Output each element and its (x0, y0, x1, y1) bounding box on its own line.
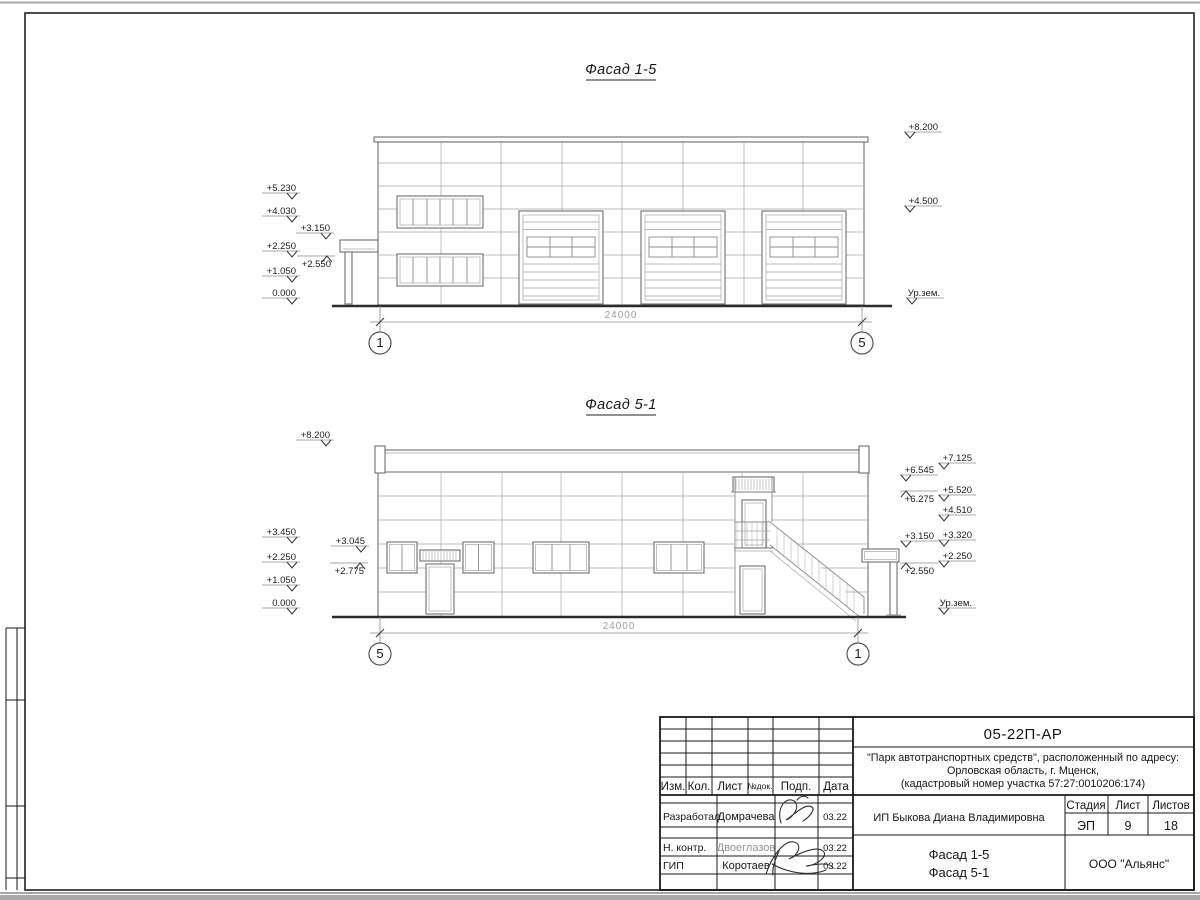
svg-text:+6.545: +6.545 (905, 465, 934, 476)
entrance-portico (340, 240, 378, 304)
elevation-mark: +1.050 (262, 266, 300, 282)
svg-text:+2.550: +2.550 (905, 566, 934, 577)
row-date-gip: 03.22 (823, 861, 847, 872)
facade-5-1-elevation-marks-right-inner: +6.545 +6.275 +3.150 +2.550 (900, 465, 938, 577)
elevation-mark: +1.050 (262, 575, 300, 591)
dimension-text: 24000 (605, 310, 638, 321)
row-name-gip: Коротаев (722, 860, 770, 872)
title-block: 05-22П-АР "Парк автотранспортных средств… (660, 717, 1194, 890)
svg-text:+2.250: +2.250 (267, 552, 296, 563)
project-description-line3: (кадастровый номер участка 57:27:0010206… (901, 778, 1145, 790)
elevation-mark: +3.450 (262, 527, 300, 543)
elevation-mark: +2.550 (297, 256, 335, 270)
svg-text:5: 5 (858, 335, 865, 350)
svg-text:+2.250: +2.250 (943, 551, 972, 562)
svg-text:+2.550: +2.550 (302, 259, 331, 270)
facade-5-1-title: Фасад 5-1 (585, 397, 657, 413)
sheet-number: 9 (1125, 819, 1132, 833)
project-description-line1: "Парк автотранспортных средств", располо… (867, 752, 1179, 764)
stage-label: Стадия (1066, 800, 1105, 812)
elevation-mark: 0.000 (262, 598, 300, 614)
elevation-mark: +8.200 (904, 122, 942, 138)
svg-text:+8.200: +8.200 (909, 122, 938, 133)
svg-text:+4.030: +4.030 (267, 206, 296, 217)
stage-value: ЭП (1077, 819, 1095, 833)
window-2 (463, 542, 494, 573)
col-header-izm: Изм. (661, 781, 686, 793)
svg-text:1: 1 (854, 646, 861, 661)
svg-text:+1.050: +1.050 (267, 266, 296, 277)
side-stamp (6, 628, 25, 890)
elevation-mark: +5.520 (938, 485, 976, 501)
col-header-data: Дата (823, 781, 849, 793)
facade-1-5-elevation-marks-right: +8.200 +4.500 Ур.зем. (904, 122, 944, 304)
upper-floor-door (742, 500, 766, 548)
window-1 (387, 542, 417, 573)
elevation-mark: 0.000 (262, 288, 300, 304)
elevation-mark: +3.045 (331, 536, 369, 552)
svg-text:1: 1 (376, 335, 383, 350)
garage-door-2 (641, 211, 725, 304)
upper-door-canopy (731, 477, 776, 492)
svg-text:+2.250: +2.250 (267, 241, 296, 252)
elevation-mark: +5.230 (262, 183, 300, 199)
svg-text:Ур.зем.: Ур.зем. (908, 288, 940, 299)
row-date-developed: 03.22 (823, 812, 847, 823)
facade-5-1-elevation-marks-right-outer: +7.125 +5.520 +4.510 +3.320 +2.250 Ур.зе… (938, 453, 976, 614)
window-4 (654, 542, 704, 573)
svg-text:+7.125: +7.125 (943, 453, 972, 464)
svg-text:+6.275: +6.275 (905, 494, 934, 505)
sheet-label: Лист (1116, 800, 1142, 812)
garage-door-1 (519, 211, 603, 304)
row-role-developed: Разработал (663, 811, 720, 823)
row-role-ncontrol: Н. контр. (663, 842, 706, 854)
signature-developed (780, 796, 813, 823)
dimension-text: 24000 (603, 621, 636, 632)
elevation-mark: +3.150 (296, 223, 334, 239)
ground-floor-door (740, 566, 765, 614)
drawing-name-line1: Фасад 1-5 (929, 847, 990, 862)
svg-text:+3.150: +3.150 (301, 223, 330, 234)
doc-number: 05-22П-АР (984, 726, 1063, 743)
facade-1-5-building (332, 137, 892, 306)
client-name: ИП Быкова Диана Владимировна (873, 812, 1045, 824)
facade-5-1-drawing: Фасад 5-1 (262, 397, 976, 665)
window-3 (533, 542, 589, 573)
svg-text:0.000: 0.000 (272, 598, 296, 609)
svg-text:5: 5 (376, 646, 383, 661)
elevation-mark: +2.250 (262, 241, 300, 257)
svg-text:+2.775: +2.775 (335, 566, 364, 577)
row-date-ncontrol: 03.22 (823, 843, 847, 854)
entrance-door-canopy (420, 550, 460, 561)
elevation-mark: +4.030 (262, 206, 300, 222)
sheets-total: 18 (1164, 819, 1178, 833)
svg-text:0.000: 0.000 (272, 288, 296, 299)
elevation-mark: +6.545 (900, 465, 938, 481)
facade-5-1-elevation-marks-left: +8.200 +3.450 +3.045 +2.250 +2.775 +1.05… (262, 430, 369, 614)
sheets-label: Листов (1152, 800, 1189, 812)
ribbon-window-lower (397, 254, 483, 286)
facade-1-5-dimension: 24000 1 5 (369, 306, 873, 354)
facade-1-5-title: Фасад 1-5 (585, 62, 657, 78)
elevation-mark: +7.125 (938, 453, 976, 469)
elevation-mark: +2.775 (330, 563, 368, 577)
svg-text:+8.200: +8.200 (301, 430, 330, 441)
svg-text:+3.450: +3.450 (267, 527, 296, 538)
elevation-mark: +2.550 (900, 563, 938, 577)
garage-door-3 (762, 211, 846, 304)
facade-5-1-building (332, 446, 906, 621)
elevation-mark: Ур.зем. (938, 598, 976, 614)
ribbon-window-upper (397, 196, 483, 228)
svg-text:+5.520: +5.520 (943, 485, 972, 496)
organization-name: ООО "Альянс" (1089, 857, 1169, 871)
row-name-ncontrol: Двоеглазов (717, 842, 776, 854)
col-header-kol: Кол. (688, 781, 711, 793)
facade-5-1-dimension: 24000 5 1 (369, 617, 869, 665)
elevation-mark: +2.250 (938, 551, 976, 567)
col-header-list: Лист (718, 781, 744, 793)
elevation-mark: +3.320 (938, 530, 976, 546)
svg-text:+4.500: +4.500 (909, 196, 938, 207)
entrance-door (426, 564, 454, 614)
elevation-mark: +2.250 (262, 552, 300, 568)
svg-text:+5.230: +5.230 (267, 183, 296, 194)
facade-1-5-elevation-marks-left: +5.230 +4.030 +3.150 +2.250 +2.550 +1.05… (262, 183, 335, 304)
facade-1-5-drawing: Фасад 1-5 (262, 62, 944, 354)
col-header-ndok: №док. (748, 781, 773, 791)
elevation-mark: +6.275 (900, 491, 938, 505)
svg-text:+1.050: +1.050 (267, 575, 296, 586)
drawing-name-line2: Фасад 5-1 (929, 865, 990, 880)
elevation-mark: +4.510 (938, 505, 976, 521)
col-header-podp: Подп. (781, 781, 812, 793)
svg-text:+4.510: +4.510 (943, 505, 972, 516)
project-description-line2: Орловская область, г. Мценск, (947, 765, 1099, 777)
svg-text:+3.150: +3.150 (905, 531, 934, 542)
row-name-developed: Домрачева (718, 811, 776, 823)
svg-text:+3.320: +3.320 (943, 530, 972, 541)
elevation-mark: Ур.зем. (906, 288, 944, 304)
elevation-mark: +3.150 (900, 531, 938, 547)
elevation-mark: +4.500 (904, 196, 942, 212)
svg-text:+3.045: +3.045 (336, 536, 365, 547)
drawing-sheet: Фасад 1-5 (0, 0, 1200, 900)
svg-text:Ур.зем.: Ур.зем. (940, 598, 972, 609)
row-role-gip: ГИП (663, 860, 684, 872)
elevation-mark: +8.200 (296, 430, 334, 446)
